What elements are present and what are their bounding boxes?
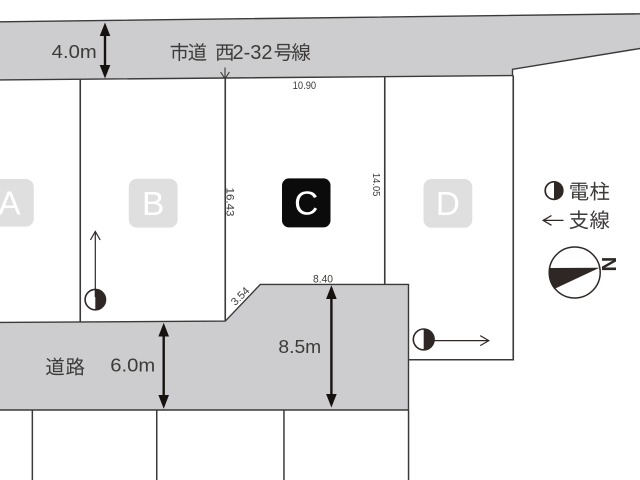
svg-text:10.90: 10.90 <box>293 80 317 92</box>
svg-text:2-32: 2-32 <box>233 42 273 64</box>
svg-text:6.0m: 6.0m <box>110 355 155 376</box>
svg-text:16.43: 16.43 <box>223 188 235 217</box>
svg-text:N: N <box>597 257 619 272</box>
svg-text:C: C <box>294 186 318 223</box>
svg-text:A: A <box>0 186 21 223</box>
svg-text:14.05: 14.05 <box>370 173 382 197</box>
svg-text:B: B <box>142 186 164 223</box>
svg-text:8.40: 8.40 <box>313 273 333 285</box>
svg-text:4.0m: 4.0m <box>52 41 97 62</box>
svg-text:D: D <box>436 186 460 223</box>
svg-text:8.5m: 8.5m <box>278 336 321 357</box>
